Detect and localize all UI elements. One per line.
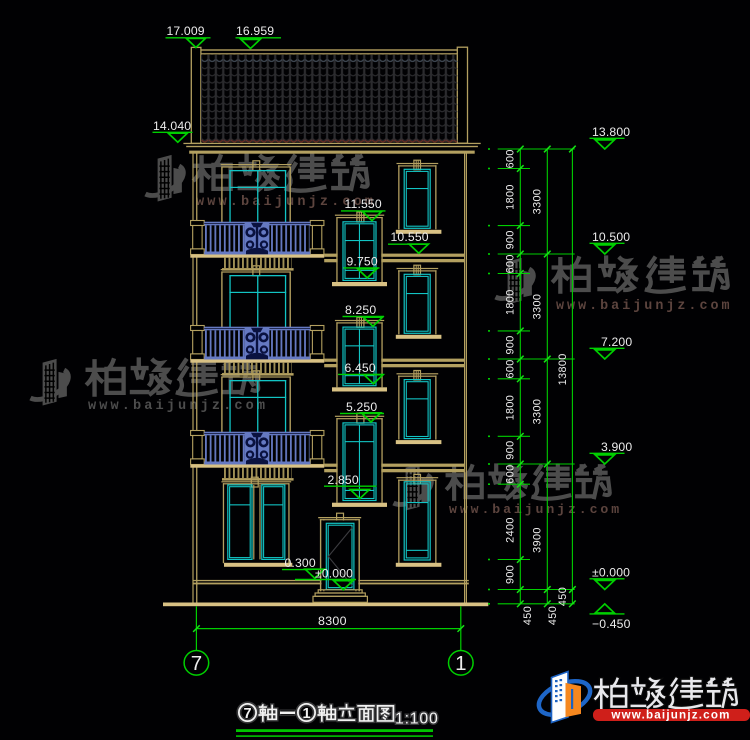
svg-text:450: 450	[557, 587, 569, 606]
svg-text:600: 600	[505, 359, 517, 378]
svg-text:7: 7	[191, 652, 202, 675]
svg-text:10.550: 10.550	[391, 230, 429, 244]
svg-text:450: 450	[547, 606, 559, 625]
svg-text:−0.450: −0.450	[592, 617, 631, 631]
svg-text:2400: 2400	[505, 517, 517, 543]
svg-text:900: 900	[505, 565, 517, 584]
svg-text:7: 7	[243, 706, 251, 722]
svg-text:3.900: 3.900	[601, 440, 632, 454]
svg-text:17.009: 17.009	[167, 24, 205, 38]
svg-text:±0.000: ±0.000	[315, 566, 353, 580]
svg-text:5.250: 5.250	[346, 400, 377, 414]
svg-text:900: 900	[505, 230, 517, 249]
svg-text:10.500: 10.500	[592, 230, 630, 244]
svg-text:2.850: 2.850	[328, 473, 359, 487]
svg-text:www.baijunjz.com: www.baijunjz.com	[610, 709, 730, 722]
svg-text:1800: 1800	[505, 184, 517, 210]
svg-text:1800: 1800	[505, 289, 517, 315]
svg-text:0.300: 0.300	[285, 556, 316, 570]
svg-text:www.baijunjz.com: www.baijunjz.com	[88, 399, 268, 414]
svg-text:1: 1	[302, 706, 310, 722]
svg-text:www.baijunjz.com: www.baijunjz.com	[556, 299, 733, 314]
svg-text:±0.000: ±0.000	[592, 565, 630, 579]
svg-text:3300: 3300	[532, 189, 544, 215]
svg-text:3900: 3900	[532, 527, 544, 553]
svg-text:1: 1	[455, 652, 466, 675]
svg-text:14.040: 14.040	[153, 119, 191, 133]
svg-text:600: 600	[505, 149, 517, 168]
svg-text:www.baijunjz.com: www.baijunjz.com	[449, 502, 622, 517]
svg-text:600: 600	[505, 464, 517, 483]
svg-text:1:100: 1:100	[395, 711, 439, 728]
svg-text:16.959: 16.959	[236, 24, 274, 38]
svg-text:6.450: 6.450	[345, 361, 376, 375]
svg-text:600: 600	[505, 254, 517, 273]
svg-text:7.200: 7.200	[601, 335, 632, 349]
svg-text:11.550: 11.550	[345, 197, 382, 211]
svg-text:13.800: 13.800	[592, 125, 630, 139]
svg-text:9.750: 9.750	[347, 255, 378, 269]
svg-text:8.250: 8.250	[345, 303, 376, 317]
svg-text:450: 450	[522, 606, 534, 625]
svg-text:8300: 8300	[318, 614, 347, 628]
svg-text:900: 900	[505, 335, 517, 354]
svg-text:3300: 3300	[532, 399, 544, 425]
svg-text:13800: 13800	[557, 353, 569, 385]
svg-text:900: 900	[505, 440, 517, 459]
svg-text:1800: 1800	[505, 395, 517, 421]
svg-text:3300: 3300	[532, 294, 544, 320]
